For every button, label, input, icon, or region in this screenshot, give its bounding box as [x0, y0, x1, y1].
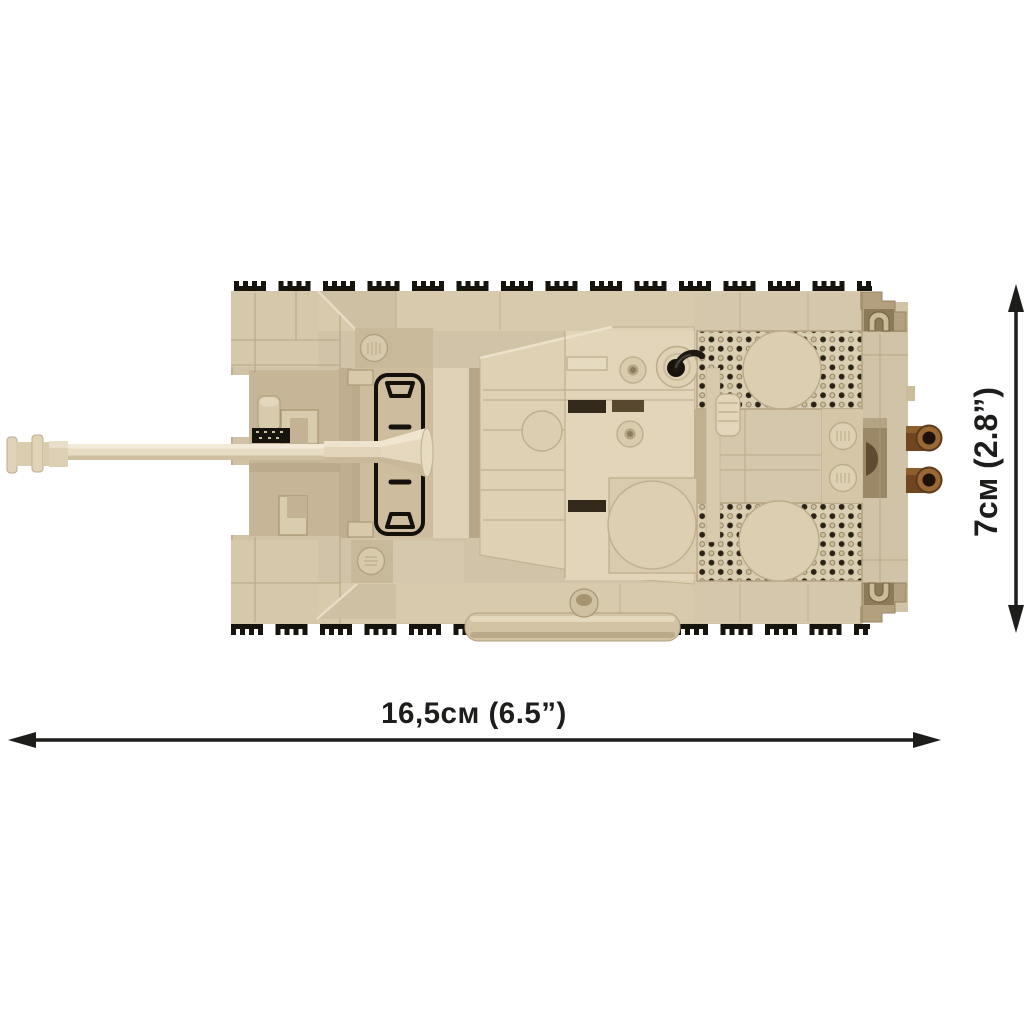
svg-text:7cм (2.8”): 7cм (2.8”): [968, 387, 1004, 537]
svg-text:16,5cм (6.5”): 16,5cм (6.5”): [381, 697, 567, 730]
